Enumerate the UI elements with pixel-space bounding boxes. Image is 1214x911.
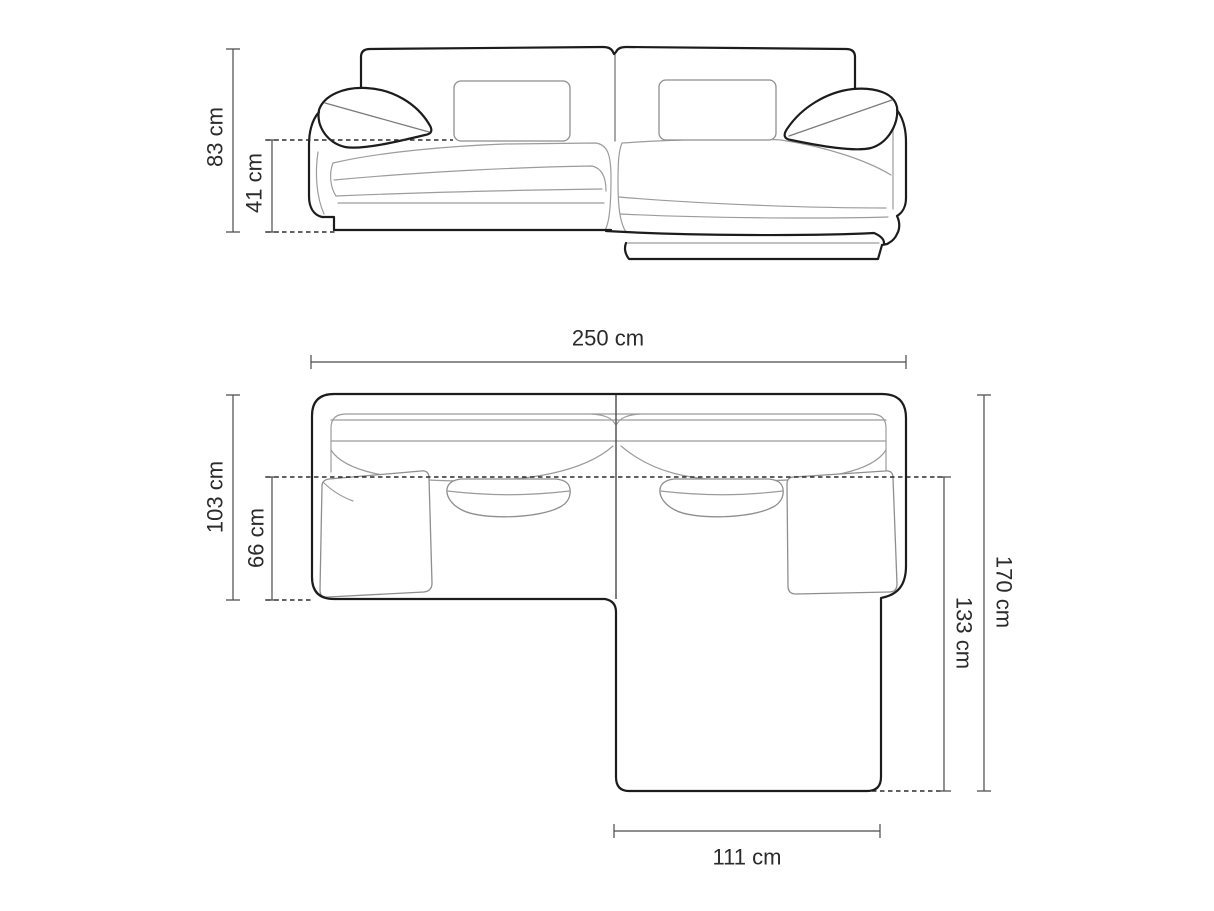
armrest-pillow-right: [787, 471, 897, 594]
dim-seat-height: 41 cm: [242, 140, 279, 232]
dim-overall-height-label: 83 cm: [203, 107, 228, 167]
chaise-lower-seam-line: [620, 214, 888, 218]
chaise-plinth-outline: [625, 243, 882, 259]
seat-lower-seam-line: [336, 189, 602, 196]
chaise-seam-line: [619, 197, 886, 208]
dim-overall-depth-label: 170 cm: [991, 556, 1016, 628]
seat-pillow-right: [660, 479, 783, 517]
dim-overall-height: 83 cm: [203, 49, 240, 232]
armrest-pillow-left: [320, 471, 432, 597]
seat-pillow-left: [447, 479, 570, 517]
dim-seat-height-label: 41 cm: [242, 153, 267, 213]
front-view: 83 cm 41 cm: [203, 47, 906, 259]
seat-top-line: [333, 143, 611, 230]
dim-overall-width-label: 250 cm: [572, 326, 644, 351]
sofa-dimension-diagram: 83 cm 41 cm: [0, 0, 1214, 911]
dim-left-side-depth-label: 103 cm: [203, 461, 228, 533]
backrest-band-outline: [331, 414, 886, 472]
dim-seat-depth-label: 66 cm: [244, 508, 269, 568]
dim-chaise-length-label: 133 cm: [951, 597, 976, 669]
diagram-svg: 83 cm 41 cm: [0, 0, 1214, 911]
dim-seat-depth: 66 cm: [244, 477, 279, 600]
armrest-cushion-right: [785, 89, 898, 150]
dim-left-side-depth-line: [226, 395, 240, 600]
dim-overall-depth: 170 cm: [977, 395, 1016, 791]
backrest-outline: [361, 47, 855, 96]
seat-seam-line: [334, 166, 606, 191]
dim-seat-height-line: [265, 140, 279, 232]
dim-chaise-width: 111 cm: [614, 824, 880, 870]
dim-chaise-width-line: [614, 824, 880, 838]
dim-chaise-length-line: [937, 477, 951, 791]
top-view: 250 cm 103 cm 66 cm 170 cm 133 cm 111 cm: [203, 326, 1017, 870]
front-seat-detail-lines: [316, 54, 893, 243]
lumbar-pillow-right: [659, 80, 776, 140]
dim-overall-width: 250 cm: [311, 326, 906, 369]
dim-overall-depth-line: [977, 395, 991, 791]
dim-chaise-width-label: 111 cm: [713, 845, 782, 870]
armrest-cushion-left: [319, 88, 432, 148]
dim-chaise-length: 133 cm: [937, 477, 976, 791]
dim-left-side-depth: 103 cm: [203, 395, 240, 600]
chaise-body-bottom-contour: [606, 231, 884, 243]
chaise-left-end-curve: [618, 143, 626, 232]
armrest-left-inner-line: [316, 152, 324, 214]
lumbar-pillow-left: [454, 81, 570, 141]
dim-overall-height-line: [226, 49, 240, 232]
dim-overall-width-line: [311, 355, 906, 369]
